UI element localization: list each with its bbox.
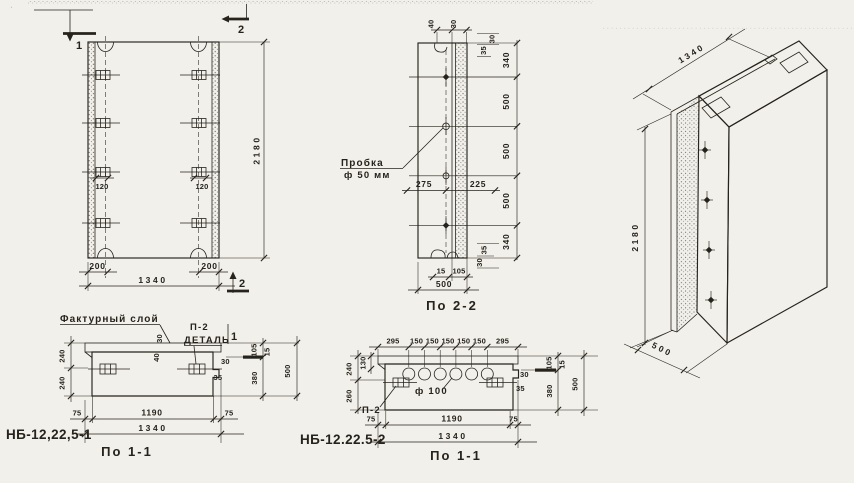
dim-right-2: 500 — [501, 143, 511, 159]
panel-mark-1: НБ-12,22,5-1 — [6, 427, 92, 442]
detail-flag-label: 1 — [231, 331, 237, 343]
dim-layer-30: 30 — [155, 334, 164, 343]
dim-notch-35: 35 — [516, 384, 525, 393]
plug-label: Пробка — [341, 157, 384, 169]
panel-outline — [88, 42, 219, 258]
flag-1-label: 1 — [76, 40, 82, 52]
dim-right-500: 500 — [571, 377, 580, 390]
dim-anchor-left: 120 — [95, 182, 108, 191]
dim-left-240: 240 — [345, 362, 354, 375]
front-elevation-view: 120 120 2180 200 200 1340 1 2 — [34, 4, 270, 293]
dim-notch-30: 30 — [221, 357, 230, 366]
dim-right-3: 500 — [501, 192, 511, 208]
dim-edge-left: 200 — [89, 261, 105, 271]
plug-diameter-label: ф 50 мм — [344, 170, 391, 181]
dim-bottom-500: 500 — [436, 279, 452, 289]
dim-275: 275 — [416, 179, 432, 189]
dim-top-0: 295 — [386, 337, 399, 346]
dim-75-left: 75 — [367, 415, 376, 424]
dim-top-2: 150 — [426, 337, 439, 346]
dim-top-1: 150 — [410, 337, 423, 346]
dim-right-380: 380 — [250, 371, 259, 384]
lifting-loops — [98, 42, 207, 258]
dim-top-5: 150 — [473, 337, 486, 346]
dim-top-30: 30 — [449, 20, 458, 29]
facture-layer-label: Фактурный слой — [60, 314, 159, 325]
facture-layer-strip — [378, 356, 518, 364]
dim-75-left: 75 — [73, 409, 82, 418]
dim-right-15: 15 — [263, 348, 272, 357]
section-1-1-view-type1: Фактурный слой П-2 ДЕТАЛЬ 1 30 40 30 35 … — [6, 314, 300, 459]
iso-facture-layer — [671, 55, 777, 332]
section-flag-2-bottom: 2 — [227, 272, 249, 294]
dim-right-15: 15 — [558, 360, 567, 369]
flag-2-bottom-label: 2 — [239, 278, 245, 290]
detail-ref-label: П-2 — [190, 322, 209, 333]
dim-right-4: 340 — [501, 234, 511, 250]
dim-edge-right: 200 — [201, 261, 217, 271]
dim-right-1: 500 — [501, 93, 511, 109]
dim-1340: 1340 — [438, 431, 467, 441]
section-2-2-view: Пробка ф 50 мм 275 225 340 500 500 500 3… — [340, 20, 520, 313]
plug-holes — [403, 368, 494, 380]
anchor-plates — [82, 71, 220, 228]
dim-top-6: 295 — [496, 337, 509, 346]
section-flag-1-top: 1 — [34, 10, 96, 52]
dim-anchor-right: 120 — [195, 182, 208, 191]
dim-width: 1340 — [138, 275, 167, 285]
dim-225: 225 — [470, 179, 486, 189]
iso-dim-height: 2180 — [630, 222, 640, 251]
iso-dim-depth: 500 — [650, 340, 674, 359]
section-1-1-view-type2: 295 150 150 150 150 150 295 ф 100 П-2 24… — [300, 337, 598, 464]
dim-right-500: 500 — [283, 364, 292, 377]
iso-plug-marks — [699, 141, 717, 309]
section-flag-2-top: 2 — [222, 4, 250, 36]
dim-1190: 1190 — [141, 408, 162, 418]
section-1-1-title-2: По 1-1 — [430, 448, 482, 463]
dim-notch-30: 30 — [520, 370, 529, 379]
dim-right-0: 340 — [501, 52, 511, 68]
dim-left-240-bottom: 240 — [58, 376, 67, 389]
anchor-centerlines — [106, 36, 199, 278]
blueprint-page: 120 120 2180 200 200 1340 1 2 — [0, 0, 854, 483]
dim-left-130: 130 — [359, 356, 368, 369]
dim-layer-40: 40 — [152, 353, 161, 362]
dim-tr-30: 30 — [488, 35, 497, 44]
dim-br-30: 30 — [475, 258, 484, 267]
dim-left-260: 260 — [345, 389, 354, 402]
flag-2-top-label: 2 — [238, 24, 244, 36]
dim-right-380: 380 — [545, 384, 554, 397]
iso-dim-width: 1340 — [676, 42, 706, 66]
dim-75-right: 75 — [509, 415, 518, 424]
iso-left-face — [697, 96, 729, 343]
dim-left-240-top: 240 — [58, 349, 67, 362]
dim-bottom-105: 105 — [452, 267, 465, 276]
dim-top-3: 150 — [441, 337, 454, 346]
dim-right-105: 105 — [545, 356, 554, 369]
dim-bottom-15: 15 — [437, 267, 446, 276]
anchor-boxes — [88, 364, 222, 374]
section-2-2-title: По 2-2 — [426, 298, 478, 313]
dim-1190: 1190 — [441, 414, 462, 424]
section-1-1-title-1: По 1-1 — [101, 444, 153, 459]
dim-height: 2180 — [252, 135, 262, 164]
panel-drawing-svg: 120 120 2180 200 200 1340 1 2 — [0, 0, 854, 483]
dim-right-105: 105 — [250, 343, 259, 356]
dim-top-4: 150 — [457, 337, 470, 346]
dim-top-40: 40 — [427, 20, 436, 29]
dim-75-right: 75 — [225, 409, 234, 418]
dim-1340: 1340 — [138, 423, 167, 433]
anchor-boxes — [383, 378, 517, 387]
dim-br-35: 35 — [480, 246, 489, 255]
isometric-view: 1340 2180 500 — [624, 29, 827, 378]
panel-mark-2: НБ-12.22.5-2 — [300, 432, 386, 447]
dim-tr-35: 35 — [479, 46, 488, 55]
hole-diameter-label: ф 100 — [415, 386, 448, 397]
detail-word-label: ДЕТАЛЬ — [184, 335, 230, 346]
iso-facade-face — [727, 70, 827, 343]
